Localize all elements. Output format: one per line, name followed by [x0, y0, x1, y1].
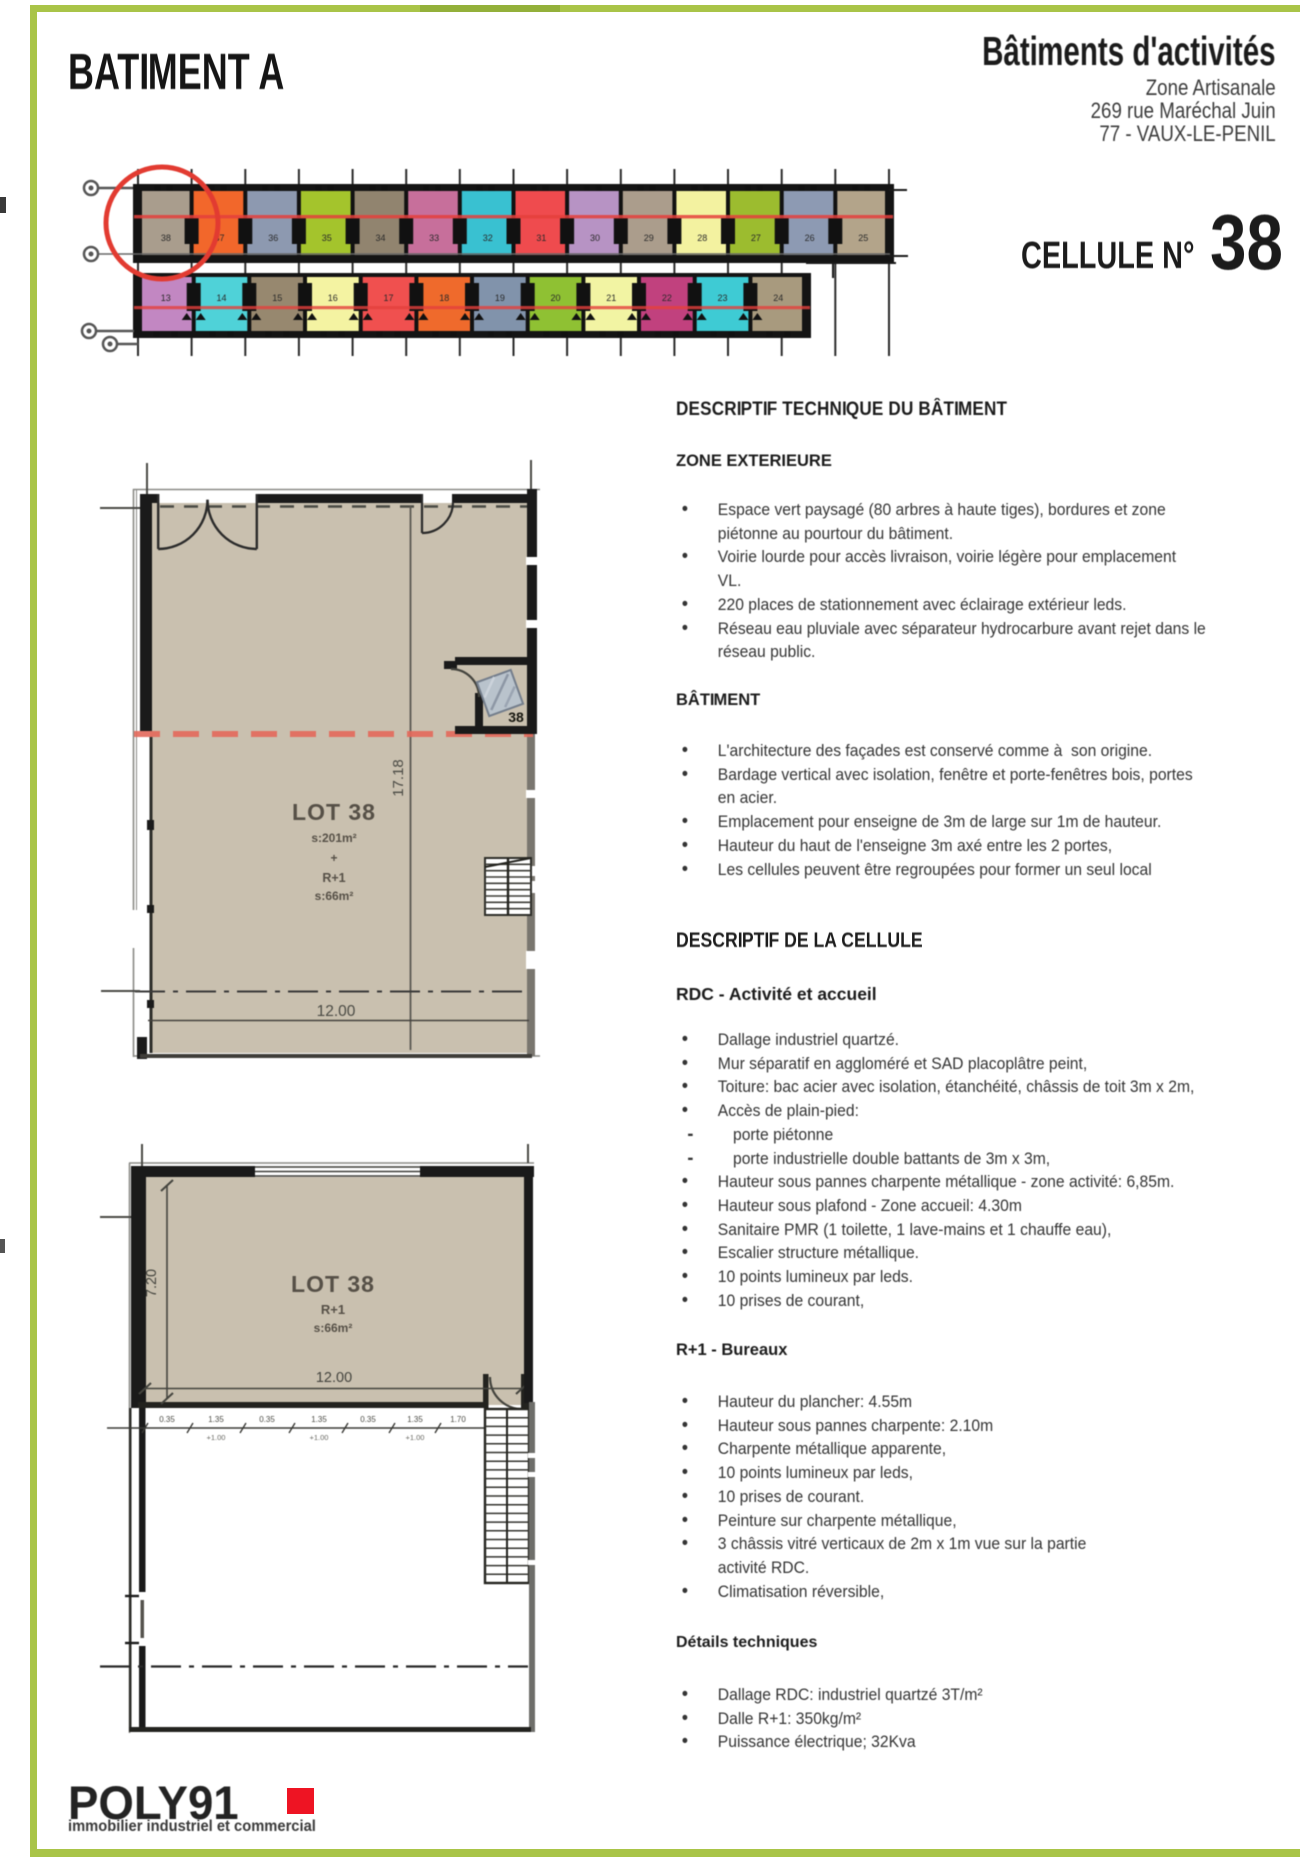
- svg-text:35: 35: [322, 233, 332, 243]
- svg-text:7.20: 7.20: [144, 1269, 160, 1297]
- svg-text:33: 33: [429, 233, 439, 243]
- svg-text:19: 19: [495, 293, 505, 303]
- svg-text:1.70: 1.70: [450, 1415, 466, 1424]
- svg-text:34: 34: [375, 233, 385, 243]
- svg-text:+1.00: +1.00: [207, 1433, 226, 1442]
- svg-text:1.35: 1.35: [311, 1415, 327, 1424]
- svg-text:+1.00: +1.00: [310, 1433, 329, 1442]
- svg-text:23: 23: [717, 293, 727, 303]
- svg-text:28: 28: [697, 233, 707, 243]
- svg-text:30: 30: [590, 233, 600, 243]
- svg-text:24: 24: [773, 293, 783, 303]
- svg-text:12.00: 12.00: [316, 1370, 352, 1386]
- svg-text:14: 14: [216, 293, 226, 303]
- svg-text:s:66m²: s:66m²: [315, 889, 354, 903]
- svg-text:18: 18: [439, 293, 449, 303]
- svg-text:LOT 38: LOT 38: [292, 799, 376, 825]
- svg-text:+1.00: +1.00: [406, 1433, 425, 1442]
- svg-text:16: 16: [328, 293, 338, 303]
- svg-text:22: 22: [662, 293, 672, 303]
- svg-text:LOT 38: LOT 38: [291, 1271, 375, 1297]
- svg-text:15: 15: [272, 293, 282, 303]
- svg-text:32: 32: [483, 233, 493, 243]
- svg-text:17.18: 17.18: [390, 759, 407, 797]
- svg-text:s:201m²: s:201m²: [311, 831, 356, 845]
- svg-text:38: 38: [161, 233, 171, 243]
- svg-text:36: 36: [268, 233, 278, 243]
- svg-text:0.35: 0.35: [259, 1415, 275, 1424]
- svg-text:0.35: 0.35: [159, 1415, 175, 1424]
- svg-text:20: 20: [550, 293, 560, 303]
- svg-text:s:66m²: s:66m²: [314, 1321, 353, 1335]
- svg-text:26: 26: [805, 233, 815, 243]
- svg-text:R+1: R+1: [322, 871, 345, 885]
- svg-text:13: 13: [161, 293, 171, 303]
- svg-text:1.35: 1.35: [407, 1415, 423, 1424]
- svg-text:29: 29: [644, 233, 654, 243]
- svg-text:+: +: [330, 851, 337, 865]
- svg-text:25: 25: [858, 233, 868, 243]
- svg-text:27: 27: [751, 233, 761, 243]
- svg-text:21: 21: [606, 293, 616, 303]
- svg-text:12.00: 12.00: [317, 1003, 356, 1020]
- svg-text:R+1: R+1: [321, 1302, 345, 1317]
- svg-text:17: 17: [383, 293, 393, 303]
- svg-text:31: 31: [536, 233, 546, 243]
- svg-text:1.35: 1.35: [208, 1415, 224, 1424]
- svg-text:0.35: 0.35: [360, 1415, 376, 1424]
- svg-text:38: 38: [508, 709, 524, 725]
